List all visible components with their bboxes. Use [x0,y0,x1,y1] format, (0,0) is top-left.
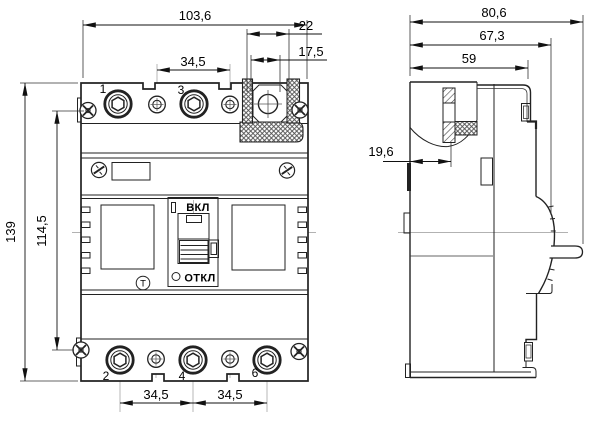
aux-terminal-icon [222,96,239,113]
seal-screw-icon [91,162,106,177]
dim-value: 17,5 [298,44,323,59]
terminal-number: 2 [103,369,110,383]
dim-value: 59 [462,51,476,66]
mounting-screw-icon [80,103,96,119]
terminal-cover [240,79,308,142]
dim-value: 19,6 [368,144,393,159]
front-view: ВКЛ ОТКЛ Т [72,64,316,412]
terminal-number: 4 [179,369,186,383]
hex-terminal-icon [181,91,207,117]
mounting-screw-icon [292,102,308,118]
dim-value: 67,3 [479,28,504,43]
dim-value: 80,6 [481,5,506,20]
mounting-hole-section [443,88,455,103]
dim-value: 34,5 [217,387,242,402]
toggle-on-label: ВКЛ [186,202,210,214]
mounting-screw-icon [73,342,89,358]
circuit-breaker-drawing: ВКЛ ОТКЛ Т [0,0,600,423]
seal-screw-icon [279,163,294,178]
terminal-number: 6 [252,366,259,380]
mounting-hole-section [443,122,455,143]
technical-drawing: ВКЛ ОТКЛ Т [0,0,600,423]
toggle-off-label: ОТКЛ [184,273,215,285]
dim-value: 34,5 [143,387,168,402]
hex-terminal-icon [105,91,131,117]
aux-terminal-icon [149,96,166,113]
cross-section-bar [455,122,477,136]
aux-terminal-icon [222,351,239,368]
toggle-handle-side[interactable] [550,246,583,258]
rating-label-plate [112,163,150,181]
dim-value: 114,5 [34,215,49,247]
terminal-number: 3 [178,83,185,97]
dim-value: 139 [3,221,18,243]
test-button-label: Т [140,279,146,290]
dim-value: 34,5 [180,54,205,69]
dim-value: 103,6 [179,8,212,23]
mounting-screw-icon [291,344,307,360]
dim-value: 22 [299,18,313,33]
hex-terminal-icon [107,347,133,373]
mounting-hole [443,103,455,122]
aux-terminal-icon [148,351,165,368]
terminal-number: 1 [100,82,107,96]
din-clip-edge [407,163,411,191]
